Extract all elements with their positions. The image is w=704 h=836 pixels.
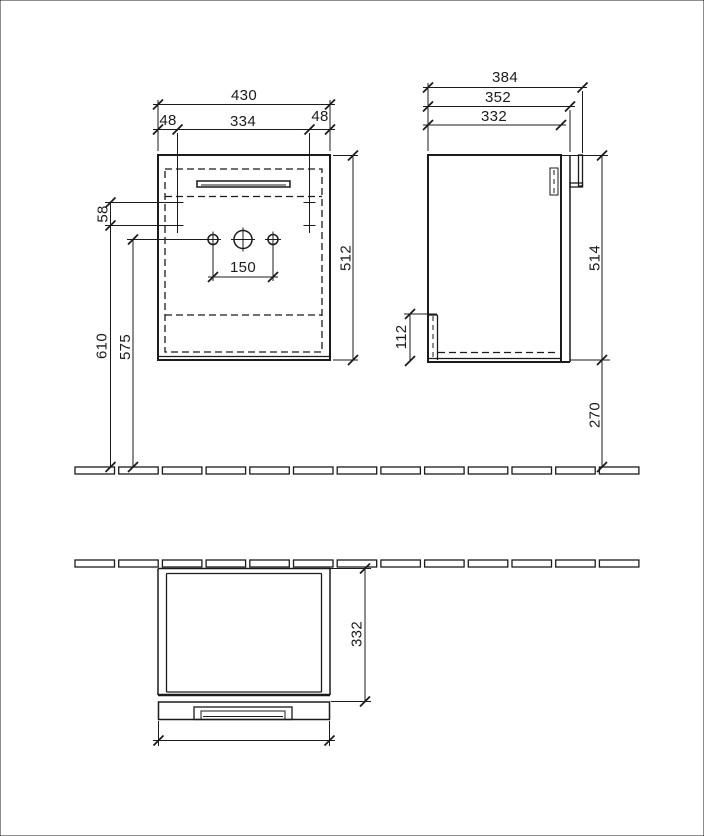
floor-tile — [206, 467, 246, 474]
dim-label-side-height: 514 — [587, 245, 604, 271]
technical-drawing-page: 430 48 334 48 58 610 575 512 — [0, 0, 704, 836]
floor-tiles-upper — [75, 467, 639, 474]
floor-tile — [162, 467, 202, 474]
floor-tile — [425, 560, 465, 567]
floor-tile — [294, 560, 334, 567]
front-dimensions: 430 48 334 48 58 610 575 512 — [94, 87, 359, 472]
floor-tile — [381, 560, 421, 567]
floor-tile — [206, 560, 246, 567]
floor-tile — [250, 467, 289, 474]
floor-tile — [599, 467, 639, 474]
door-handle-front — [197, 181, 290, 187]
dim-label-plan-depth: 332 — [349, 621, 366, 647]
plan-door-handle — [194, 707, 292, 720]
side-carcass-outline — [428, 155, 561, 362]
floor-tile — [512, 560, 552, 567]
floor-tile — [556, 560, 596, 567]
door-handle-side — [570, 155, 583, 187]
drawing-canvas: 430 48 334 48 58 610 575 512 — [0, 0, 704, 836]
floor-tile — [512, 467, 552, 474]
side-view — [428, 155, 583, 362]
floor-tile — [556, 467, 596, 474]
floor-tile — [337, 560, 377, 567]
hidden-bracket — [550, 168, 558, 195]
dim-label-height-carcass: 512 — [338, 245, 355, 271]
floor-tile — [119, 467, 159, 474]
floor-tile — [162, 560, 202, 567]
dim-label-floor-clearance: 270 — [587, 402, 604, 428]
dim-label-height-tap: 575 — [117, 334, 134, 360]
mounting-point-crosses — [172, 197, 316, 232]
dim-label-offset-right: 48 — [311, 108, 328, 125]
dim-label-depth-total: 384 — [492, 69, 518, 86]
floor-tile — [337, 467, 377, 474]
dim-label-offset-left: 48 — [159, 112, 176, 129]
dim-label-depth-carcass: 332 — [481, 108, 507, 125]
floor-tile — [425, 467, 465, 474]
wall-tiles-lower — [75, 560, 639, 567]
front-view — [158, 155, 330, 360]
dim-label-height-mount: 610 — [94, 333, 111, 359]
dim-label-hole-spacing: 334 — [230, 113, 256, 130]
floor-tile — [381, 467, 421, 474]
floor-tile — [75, 560, 115, 567]
dim-label-mount-row-gap: 58 — [95, 205, 112, 222]
plan-dimensions: 332 — [153, 564, 371, 747]
dim-label-tap-spacing: 150 — [230, 259, 256, 276]
dim-label-rear-rail-height: 112 — [393, 325, 410, 350]
floor-tile — [468, 560, 508, 567]
floor-tile — [468, 467, 508, 474]
dim-label-depth-door: 352 — [485, 89, 511, 106]
plan-view — [158, 569, 330, 720]
tap-holes — [205, 228, 281, 252]
floor-tile — [599, 560, 639, 567]
floor-tile — [119, 560, 159, 567]
floor-tile — [294, 467, 334, 474]
floor-tile — [250, 560, 289, 567]
rear-mounting-rail — [428, 315, 557, 360]
side-dimensions: 384 352 332 514 270 112 — [393, 69, 610, 472]
carcass-outline — [158, 155, 330, 360]
dim-label-width-total: 430 — [231, 87, 257, 104]
